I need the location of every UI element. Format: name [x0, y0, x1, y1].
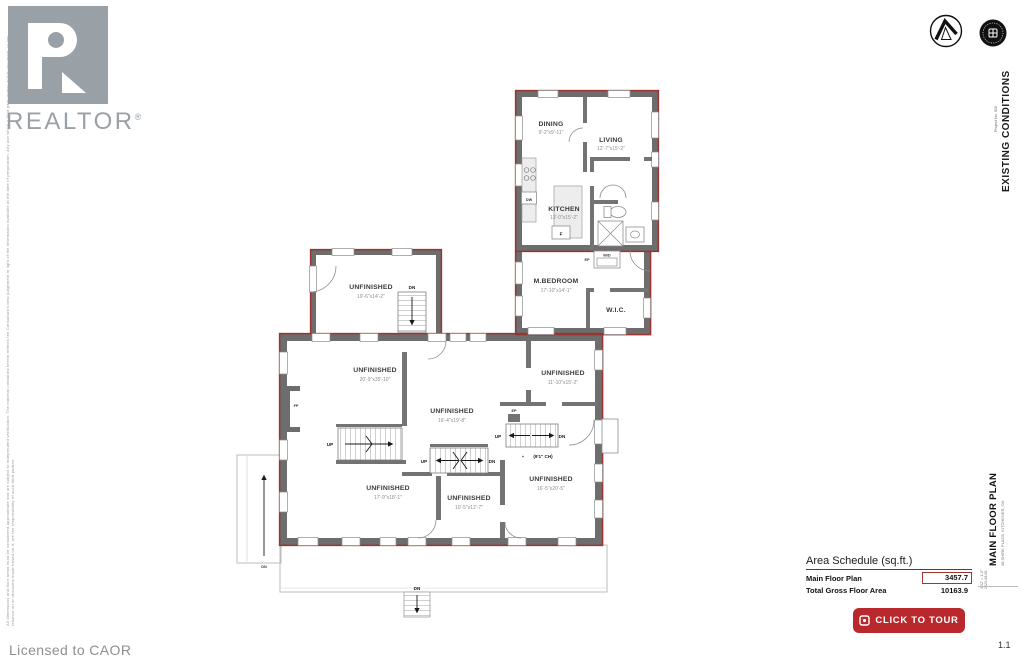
- room-label-unf6: UNFINISHED: [447, 495, 491, 502]
- sheet-number: 1.1: [998, 640, 1011, 650]
- area-schedule-row: Main Floor Plan 3457.7: [806, 572, 972, 584]
- label-fridge: F: [560, 232, 563, 237]
- tour-camera-icon: [859, 615, 870, 626]
- realtor-wordmark: REALTOR®: [6, 108, 144, 136]
- label-up: UP: [421, 459, 427, 464]
- sheet-address-label: 38 SHIRK PLACE, KITCHENER, ON: [1000, 500, 1005, 566]
- room-label-dining: DINING: [539, 121, 564, 128]
- room-dims-unf4: 11'-10"x15'-2": [548, 380, 579, 386]
- room-dims-unf7: 16'-5"x20'-5": [537, 486, 565, 492]
- room-dims-unf2: 20'-9"x35'-10": [360, 377, 391, 383]
- sheet-title-label: MAIN FLOOR PLAN: [988, 473, 999, 566]
- label-plus-mark: +: [522, 455, 525, 459]
- room-label-living: LIVING: [599, 137, 623, 144]
- label-fireplace: FP: [294, 404, 299, 408]
- registered-mark: ®: [135, 112, 144, 122]
- titleblock-divider: [978, 586, 1018, 587]
- room-dims-kitchen: 13'-0"x15'-2": [550, 215, 578, 221]
- label-dishwasher: DW: [526, 198, 533, 202]
- area-schedule-row: Total Gross Floor Area 10163.9: [806, 586, 972, 595]
- label-ceiling-height: (9'1" CH): [533, 454, 553, 459]
- room-label-mbedroom: M.BEDROOM: [534, 278, 579, 285]
- room-label-unf4: UNFINISHED: [541, 370, 585, 377]
- area-schedule-title: Area Schedule (sq.ft.): [806, 555, 972, 570]
- label-washer-dryer: W/D: [603, 254, 611, 258]
- room-dims-mbedroom: 17'-10"x14'-1": [541, 288, 572, 294]
- compass-logo-icon: [929, 14, 963, 53]
- label-dn: DN: [409, 285, 416, 290]
- realtor-logo-mark: [8, 6, 110, 106]
- room-label-unf2: UNFINISHED: [353, 367, 397, 374]
- room-dims-unf5: 17'-9"x18'-1": [374, 495, 402, 501]
- room-label-unf7: UNFINISHED: [529, 476, 573, 483]
- realtor-logo: [8, 6, 110, 111]
- existing-conditions-label: EXISTING CONDITIONS: [1001, 70, 1012, 192]
- licensed-text: Licensed to CAOR: [9, 642, 131, 658]
- label-panel: EP: [511, 409, 517, 413]
- toilet: [610, 207, 626, 218]
- label-dn: DN: [489, 459, 496, 464]
- certification-badge-icon: [979, 19, 1007, 52]
- room-label-wic: W.I.C.: [606, 307, 626, 314]
- label-dn: DN: [559, 434, 566, 439]
- room-dims-unf6: 10'-5"x12'-7": [455, 505, 483, 511]
- area-row-label: Main Floor Plan: [806, 574, 862, 583]
- room-dims-living: 12'-7"x15'-2": [597, 146, 625, 152]
- room-dims-unf1: 19'-6"x14'-2": [357, 294, 385, 300]
- label-panel: EP: [584, 258, 590, 262]
- click-to-tour-button[interactable]: CLICK TO TOUR: [853, 608, 965, 633]
- label-up: UP: [495, 434, 501, 439]
- room-label-kitchen: KITCHEN: [548, 206, 580, 213]
- room-label-unf1: UNFINISHED: [349, 284, 393, 291]
- left-disclaimer-text: All dimensions and floor areas must be c…: [6, 34, 16, 626]
- room-label-unf5: UNFINISHED: [366, 485, 410, 492]
- floor-plan-sheet: DINING 9'-2"x9'-11" LIVING 12'-7"x15'-2"…: [0, 0, 1024, 662]
- room-dims-unf3: 16'-4"x19'-8": [438, 418, 466, 424]
- label-up: UP: [327, 442, 333, 447]
- tour-button-label: CLICK TO TOUR: [875, 615, 958, 626]
- area-schedule: Area Schedule (sq.ft.) Main Floor Plan 3…: [806, 555, 972, 595]
- area-row-value-highlighted: 3457.7: [922, 572, 972, 584]
- area-row-value: 10163.9: [922, 586, 972, 595]
- project-number-label: Project No. 920: [994, 106, 998, 132]
- bath-sink: [626, 227, 644, 242]
- realtor-text: REALTOR: [6, 108, 135, 135]
- room-label-unf3: UNFINISHED: [430, 408, 474, 415]
- room-dims-dining: 9'-2"x9'-11": [539, 130, 564, 136]
- label-dn: DN: [261, 565, 267, 569]
- label-dn: DN: [414, 586, 421, 591]
- area-row-label: Total Gross Floor Area: [806, 586, 886, 595]
